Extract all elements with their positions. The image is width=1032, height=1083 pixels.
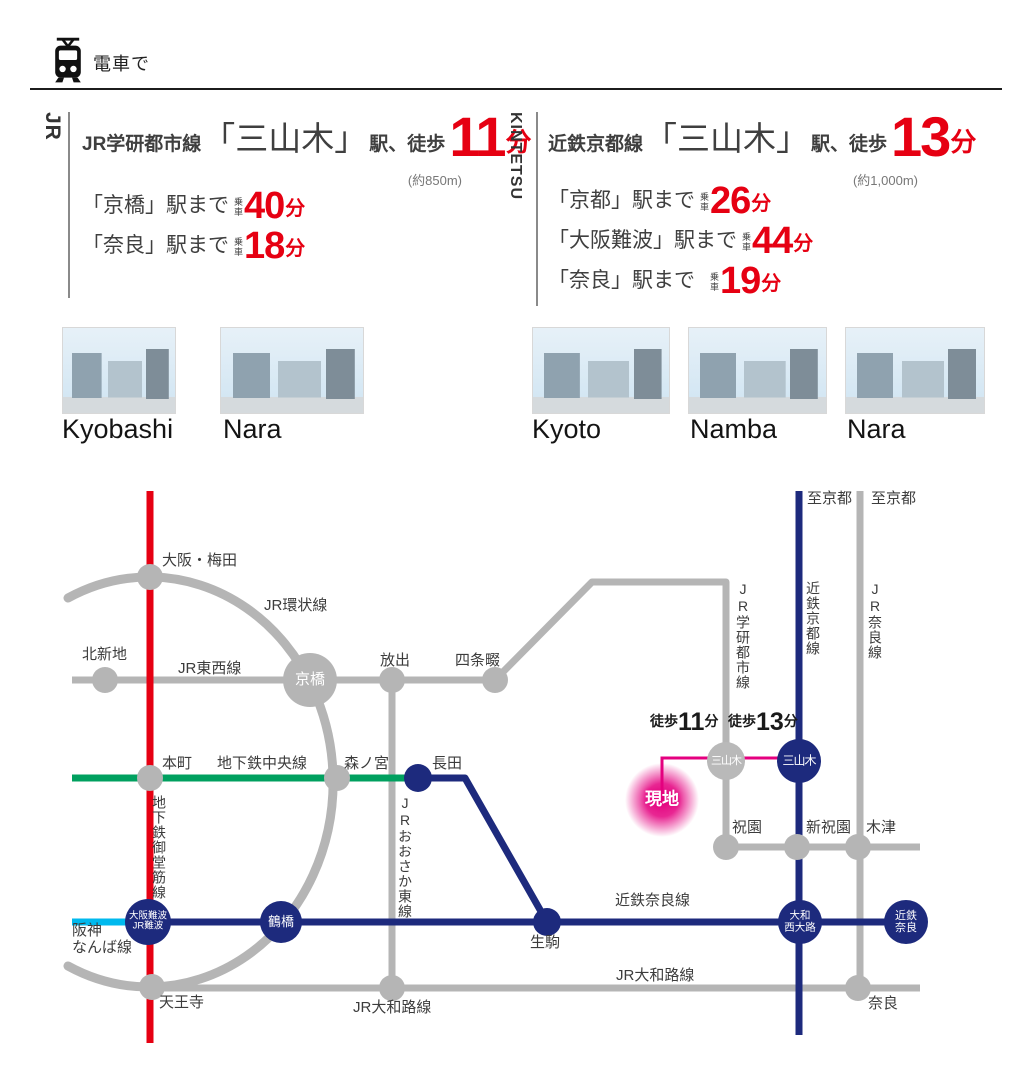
saidaiji-line-2: 西大路 xyxy=(784,922,816,934)
kintetsu-nara-line-1: 近鉄 xyxy=(895,910,917,922)
ride-label: 乗車 xyxy=(233,197,242,217)
keihanna-line xyxy=(418,778,547,922)
kintetsu-minute-unit: 分 xyxy=(950,122,976,159)
kintetsu-divider xyxy=(536,112,538,306)
map-label-jr-osaka-higashi-line: JRおおさか東線 xyxy=(398,795,412,919)
station-label-yamato-saidaiji: 大和 西大路 xyxy=(784,910,816,933)
map-label-chuo-line: 地下鉄中央線 xyxy=(217,756,307,773)
map-label-jr-tozai-line: JR東西線 xyxy=(178,661,241,678)
route-dest: 「京都」駅まで xyxy=(548,184,695,214)
map-label-hanshin-namba: 阪神 なんば線 xyxy=(72,923,132,956)
route-dest: 「京橋」駅まで xyxy=(82,189,229,219)
jr-station-name: 「三山木」 xyxy=(202,112,367,160)
route-minutes: 18 xyxy=(244,229,284,263)
route-unit: 分 xyxy=(761,267,781,296)
photo-nara-jr xyxy=(220,327,364,414)
ride-label: 乗車 xyxy=(233,237,242,257)
map-label-shin-hosono: 新祝園 xyxy=(806,820,851,837)
banner-title: 電車で xyxy=(93,50,150,76)
station-dot-nagata xyxy=(404,764,432,792)
station-dot-hanaten xyxy=(379,667,405,693)
osaka-namba-line-2: JR難波 xyxy=(129,922,167,932)
station-dot-junction xyxy=(379,975,405,1001)
route-dest: 「奈良」駅まで xyxy=(82,229,229,259)
jr-route-nara: 「奈良」駅まで 乗車 18 分 xyxy=(82,229,305,263)
map-label-nara: 奈良 xyxy=(868,996,898,1013)
station-label-tsuruhashi: 鶴橋 xyxy=(268,915,294,929)
photo-label-nara-jr: Nara xyxy=(223,414,282,445)
route-unit: 分 xyxy=(285,232,305,261)
walk-time-kintetsu: 徒歩 13 分 xyxy=(728,711,798,733)
jr-line-name: JR学研都市線 xyxy=(82,129,201,156)
jr-divider xyxy=(68,112,70,298)
kintetsu-walk-minutes: 13 xyxy=(891,112,949,162)
route-minutes: 44 xyxy=(752,224,792,258)
kintetsu-route-kyoto: 「京都」駅まで 乗車 26 分 xyxy=(548,184,771,218)
station-dot-hommachi xyxy=(137,765,163,791)
route-unit: 分 xyxy=(793,227,813,256)
jr-route-kyobashi: 「京橋」駅まで 乗車 40 分 xyxy=(82,189,305,223)
kintetsu-route-nara: 「奈良」駅まで 乗車 19 分 xyxy=(548,264,781,298)
kintetsu-walk-suffix: 駅、徒歩 xyxy=(811,129,887,156)
kintetsu-section-tag: KINTETSU xyxy=(506,112,524,200)
photo-label-nara-kintetsu: Nara xyxy=(847,414,906,445)
kintetsu-nara-line-2: 奈良 xyxy=(895,922,917,934)
route-minutes: 40 xyxy=(244,189,284,223)
route-unit: 分 xyxy=(285,192,305,221)
map-label-to-kyoto-1: 至京都 xyxy=(807,491,852,508)
map-label-kintetsu-nara-line: 近鉄奈良線 xyxy=(615,893,690,910)
walk-label: 徒歩 xyxy=(650,711,678,731)
station-label-osaka-namba: 大阪難波 JR難波 xyxy=(129,912,167,933)
jr-walk-minutes: 11 xyxy=(449,112,504,162)
kintetsu-access-line: 近鉄京都線 「三山木」 駅、徒歩 13 分 xyxy=(548,112,976,162)
photo-nara-kintetsu xyxy=(845,327,985,414)
ride-label: 乗車 xyxy=(709,272,718,292)
photo-kyoto xyxy=(532,327,670,414)
route-dest: 「奈良」駅まで xyxy=(548,264,695,294)
site-label: 現地 xyxy=(645,791,679,810)
walk-minutes: 11 xyxy=(678,712,704,733)
walk-minutes: 13 xyxy=(756,712,784,733)
jr-walk-suffix: 駅、徒歩 xyxy=(369,129,445,156)
map-label-jr-yamatoji-1: JR大和路線 xyxy=(353,1000,431,1017)
walk-time-jr: 徒歩 11 分 xyxy=(650,711,718,733)
station-label-kintetsu-nara: 近鉄 奈良 xyxy=(895,910,917,934)
map-label-kintetsu-kyoto-line: 近鉄京都線 xyxy=(806,581,820,656)
ride-label: 乗車 xyxy=(699,192,708,212)
map-label-kitashinchi: 北新地 xyxy=(82,647,127,664)
access-flyer: 電車で JR JR学研都市線 「三山木」 駅、徒歩 11 分 (約850m) 「… xyxy=(0,0,1032,1083)
saidaiji-line-1: 大和 xyxy=(784,910,816,922)
map-label-hommachi: 本町 xyxy=(162,756,192,773)
map-label-hosono: 祝園 xyxy=(732,820,762,837)
train-icon xyxy=(48,36,88,84)
station-dot-osaka-umeda xyxy=(137,564,163,590)
hanshin-line-2: なんば線 xyxy=(72,940,132,957)
station-label-miyamaki-jr: 三山木 xyxy=(711,755,741,767)
route-minutes: 26 xyxy=(710,184,750,218)
map-label-tennoji: 天王寺 xyxy=(159,995,204,1012)
map-label-hanaten: 放出 xyxy=(380,653,410,670)
map-label-osaka-umeda: 大阪・梅田 xyxy=(162,553,237,570)
walk-unit: 分 xyxy=(784,711,798,731)
station-dot-shin-hosono xyxy=(784,834,810,860)
photo-label-namba: Namba xyxy=(690,414,777,445)
photo-kyobashi xyxy=(62,327,176,414)
photo-label-kyobashi: Kyobashi xyxy=(62,414,173,445)
station-label-miyamaki-kintetsu: 三山木 xyxy=(782,754,815,767)
jr-access-line: JR学研都市線 「三山木」 駅、徒歩 11 分 xyxy=(82,112,532,162)
kintetsu-station-name: 「三山木」 xyxy=(644,112,809,160)
map-label-jr-gakkentoshi-line: JR学研都市線 xyxy=(736,581,750,690)
walk-unit: 分 xyxy=(704,711,718,731)
map-label-midosuji-line: 地下鉄御堂筋線 xyxy=(152,795,166,900)
map-label-nagata: 長田 xyxy=(432,756,462,773)
kintetsu-route-namba: 「大阪難波」駅まで 乗車 44 分 xyxy=(548,224,813,258)
map-label-kizu: 木津 xyxy=(866,820,896,837)
photo-namba xyxy=(688,327,827,414)
route-map: 大阪・梅田 JR環状線 北新地 JR東西線 放出 四条畷 本町 地下鉄中央線 森… xyxy=(0,483,1032,1083)
station-label-kyobashi: 京橋 xyxy=(295,672,325,689)
map-label-morinomiya: 森ノ宮 xyxy=(344,756,389,773)
route-dest: 「大阪難波」駅まで xyxy=(548,224,737,254)
hanshin-line-1: 阪神 xyxy=(72,923,132,940)
station-dot-hosono xyxy=(713,834,739,860)
kintetsu-distance-note: (約1,000m) xyxy=(822,170,918,189)
map-label-shijonawate: 四条畷 xyxy=(455,653,500,670)
jr-section-tag: JR xyxy=(40,112,64,141)
map-label-jr-nara-line-v: JR奈良線 xyxy=(868,581,882,660)
photo-label-kyoto: Kyoto xyxy=(532,414,601,445)
gray-station-dots xyxy=(92,564,871,1001)
route-unit: 分 xyxy=(751,187,771,216)
map-label-jr-loop-line: JR環状線 xyxy=(264,598,327,615)
route-minutes: 19 xyxy=(720,264,760,298)
ride-label: 乗車 xyxy=(741,232,750,252)
station-dot-kitashinchi xyxy=(92,667,118,693)
station-dot-ikoma xyxy=(533,908,561,936)
kintetsu-line-name: 近鉄京都線 xyxy=(548,129,643,156)
walk-label: 徒歩 xyxy=(728,711,756,731)
map-label-to-kyoto-2: 至京都 xyxy=(871,491,916,508)
jr-distance-note: (約850m) xyxy=(366,170,462,189)
banner-rule xyxy=(30,88,1002,90)
station-dot-shijonawate xyxy=(482,667,508,693)
map-label-ikoma: 生駒 xyxy=(530,935,560,952)
map-label-jr-yamatoji-2: JR大和路線 xyxy=(616,968,694,985)
station-dot-kizu xyxy=(845,834,871,860)
